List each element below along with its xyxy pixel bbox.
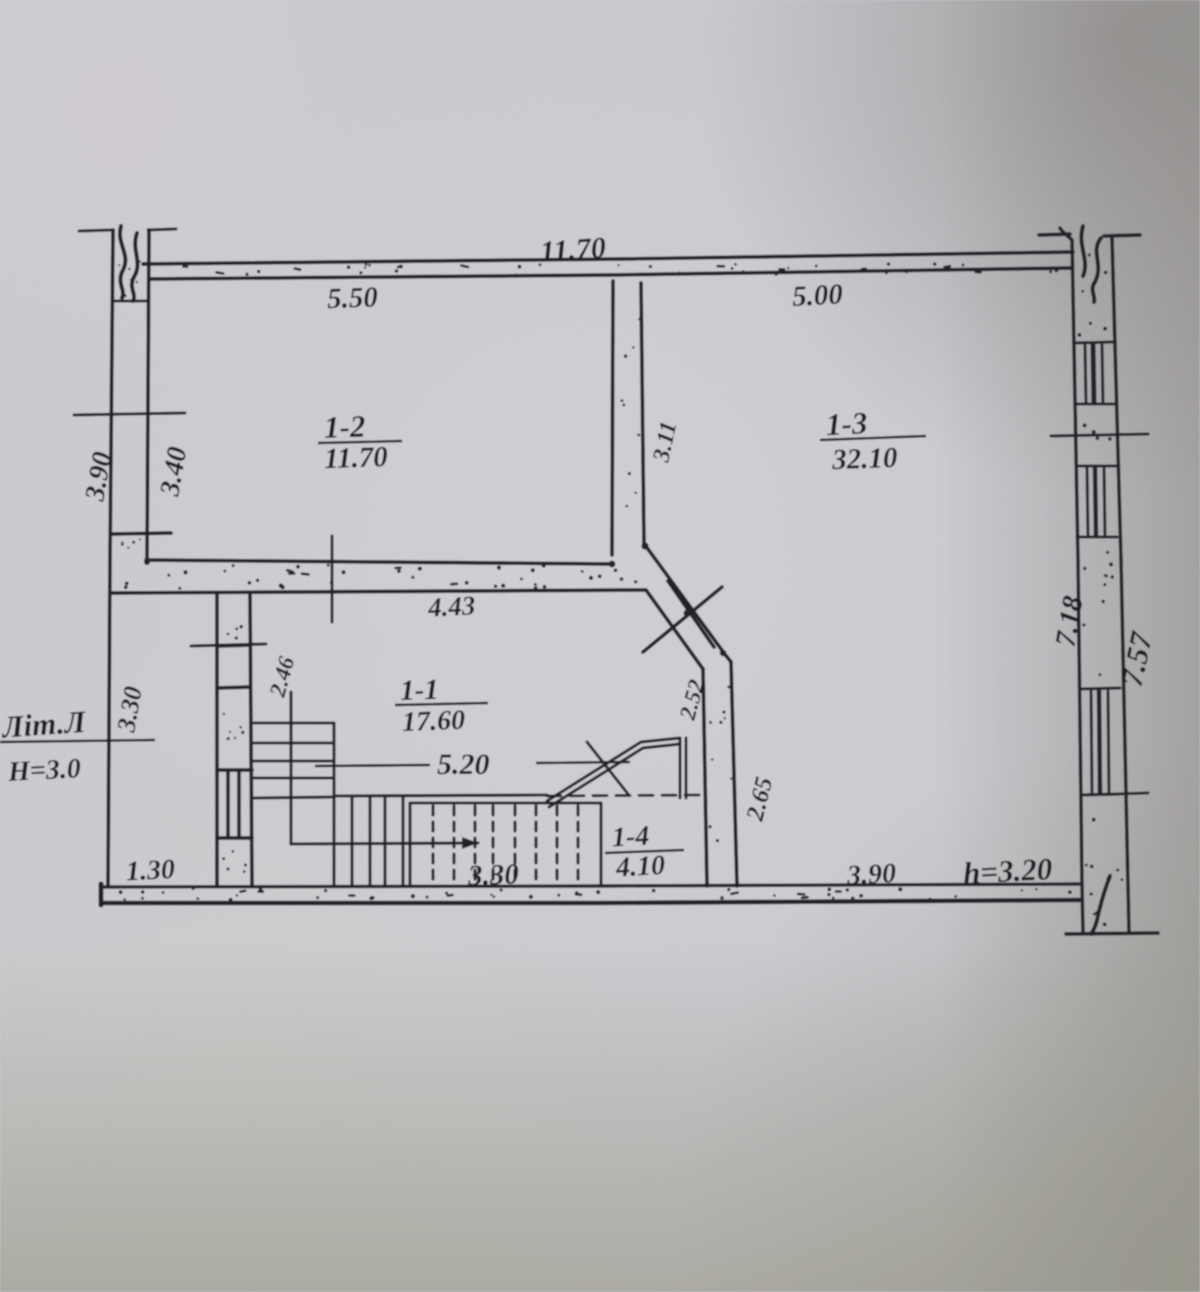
svg-text:11.70: 11.70 xyxy=(324,441,389,475)
svg-text:5.50: 5.50 xyxy=(326,281,378,315)
svg-text:1.30: 1.30 xyxy=(125,854,176,888)
svg-text:4.10: 4.10 xyxy=(614,850,666,884)
svg-text:1-4: 1-4 xyxy=(611,821,650,854)
svg-text:3.30: 3.30 xyxy=(466,858,519,892)
svg-text:4.43: 4.43 xyxy=(426,590,476,622)
svg-text:1-2: 1-2 xyxy=(323,408,366,444)
svg-text:1-3: 1-3 xyxy=(825,405,868,442)
svg-text:17.60: 17.60 xyxy=(402,705,466,738)
svg-text:3.90: 3.90 xyxy=(845,858,897,892)
svg-text:1-1: 1-1 xyxy=(399,674,439,707)
svg-text:Літ.Л: Літ.Л xyxy=(0,704,88,745)
svg-text:5.20: 5.20 xyxy=(437,748,490,781)
svg-text:11.70: 11.70 xyxy=(539,231,607,269)
svg-text:5.00: 5.00 xyxy=(791,278,843,313)
svg-text:Н=3.0: Н=3.0 xyxy=(6,753,81,788)
svg-text:h=3.20: h=3.20 xyxy=(962,851,1053,891)
svg-text:32.10: 32.10 xyxy=(831,442,898,476)
